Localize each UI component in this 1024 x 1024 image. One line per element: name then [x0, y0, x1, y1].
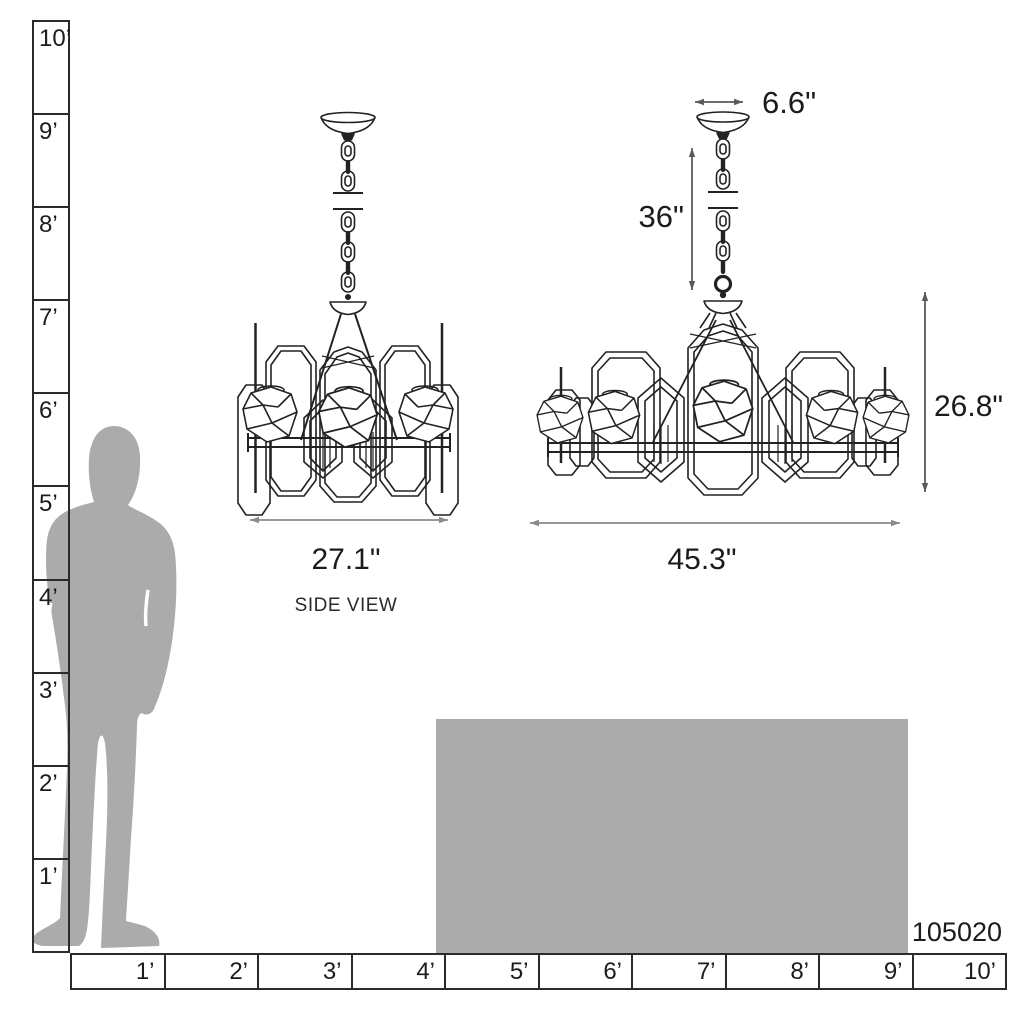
- ruler-label: 7’: [697, 958, 716, 986]
- height-arrow: [922, 292, 928, 492]
- canopy-width-label: 6.6": [762, 85, 816, 121]
- ruler-label: 1’: [39, 863, 58, 890]
- ruler-label: 9’: [884, 958, 903, 986]
- vruler-cell: 8’: [34, 206, 68, 299]
- ruler-label: 6’: [39, 397, 58, 424]
- ruler-label: 10’: [964, 958, 996, 986]
- gems: [243, 386, 453, 447]
- ruler-label: 8’: [39, 211, 58, 238]
- hruler-cell: 3’: [257, 955, 351, 988]
- vruler-cell: 9’: [34, 113, 68, 206]
- ruler-label: 2’: [229, 958, 248, 986]
- ruler-label: 6’: [603, 958, 622, 986]
- chain-length-arrow: [689, 148, 695, 290]
- width-arrow: [250, 517, 448, 523]
- vruler-cell: 3’: [34, 672, 68, 765]
- chain: [708, 139, 738, 292]
- horizontal-ruler: 1’ 2’ 3’ 4’ 5’ 6’ 7’ 8’ 9’ 10’: [70, 953, 1007, 990]
- vruler-cell: 4’: [34, 579, 68, 672]
- hruler-cell: 10’: [912, 955, 1006, 988]
- vruler-cell: 2’: [34, 765, 68, 858]
- hruler-cell: 2’: [164, 955, 258, 988]
- ruler-label: 4’: [39, 584, 58, 611]
- ruler-label: 3’: [39, 677, 58, 704]
- hruler-cell: 6’: [538, 955, 632, 988]
- chain: [333, 141, 363, 300]
- gems: [537, 380, 909, 444]
- vertical-ruler: 10’ 9’ 8’ 7’ 6’ 5’ 4’ 3’ 2’ 1’: [32, 20, 70, 953]
- diagram-canvas: 10’ 9’ 8’ 7’ 6’ 5’ 4’ 3’ 2’ 1’ 1’ 2’ 3’ …: [0, 0, 1024, 1024]
- ruler-label: 9’: [39, 118, 58, 145]
- ruler-label: 4’: [416, 958, 435, 986]
- canopy: [697, 112, 749, 139]
- hruler-cell: 7’: [631, 955, 725, 988]
- vruler-cell: 6’: [34, 392, 68, 485]
- ruler-label: 10’: [39, 25, 71, 52]
- vruler-cell: 1’: [34, 858, 68, 951]
- front-view-drawing: [520, 90, 1010, 530]
- vruler-cell: 5’: [34, 485, 68, 578]
- ruler-label: 7’: [39, 304, 58, 331]
- canopy-width-arrow: [695, 99, 743, 105]
- product-code: 105020: [902, 917, 1002, 948]
- ruler-label: 3’: [323, 958, 342, 986]
- fixture-height-label: 26.8": [934, 390, 1003, 424]
- ruler-label: 8’: [790, 958, 809, 986]
- chain-length-label: 36": [622, 199, 684, 235]
- front-view-width-label: 45.3": [648, 543, 756, 577]
- vruler-cell: 7’: [34, 299, 68, 392]
- ruler-label: 5’: [510, 958, 529, 986]
- hruler-cell: 5’: [444, 955, 538, 988]
- hruler-cell: 9’: [818, 955, 912, 988]
- hruler-cell: 8’: [725, 955, 819, 988]
- furniture-block: [436, 719, 908, 954]
- canopy: [321, 113, 375, 141]
- ruler-label: 5’: [39, 490, 58, 517]
- side-view-width-label: 27.1": [292, 543, 400, 577]
- vruler-cell: 10’: [34, 22, 68, 113]
- width-arrow: [530, 520, 900, 526]
- hruler-cell: 4’: [351, 955, 445, 988]
- side-view-caption: SIDE VIEW: [285, 595, 407, 617]
- ruler-label: 1’: [136, 958, 155, 986]
- hruler-cell: 1’: [72, 955, 164, 988]
- ruler-label: 2’: [39, 770, 58, 797]
- side-view-drawing: [230, 100, 465, 530]
